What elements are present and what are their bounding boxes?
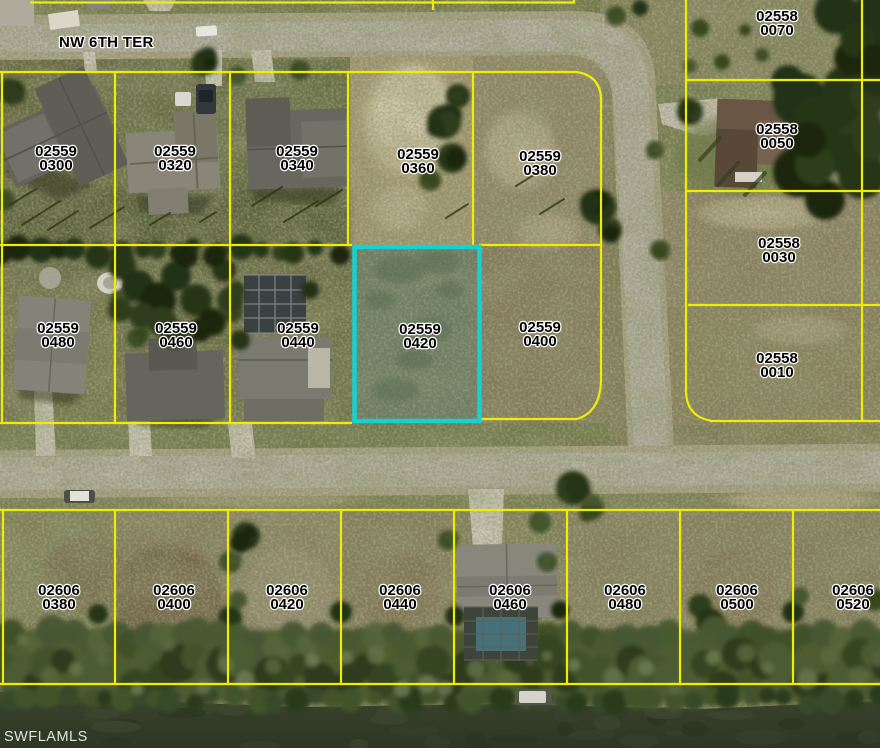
svg-text:0460: 0460 <box>493 596 526 613</box>
svg-text:0320: 0320 <box>158 157 191 174</box>
svg-text:0380: 0380 <box>523 162 556 179</box>
svg-text:0440: 0440 <box>281 334 314 351</box>
svg-text:0360: 0360 <box>401 160 434 177</box>
svg-text:0010: 0010 <box>760 364 793 381</box>
svg-text:0520: 0520 <box>836 596 869 613</box>
svg-text:0420: 0420 <box>270 596 303 613</box>
svg-text:0440: 0440 <box>383 596 416 613</box>
svg-text:NW 6TH TER: NW 6TH TER <box>59 34 154 51</box>
svg-text:0460: 0460 <box>159 334 192 351</box>
svg-text:0050: 0050 <box>760 135 793 152</box>
svg-text:0380: 0380 <box>42 596 75 613</box>
svg-text:0500: 0500 <box>720 596 753 613</box>
svg-text:0030: 0030 <box>762 249 795 266</box>
svg-text:0400: 0400 <box>523 333 556 350</box>
svg-text:0300: 0300 <box>39 157 72 174</box>
svg-text:0400: 0400 <box>157 596 190 613</box>
svg-text:SWFLAMLS: SWFLAMLS <box>4 729 88 745</box>
svg-text:0480: 0480 <box>41 334 74 351</box>
svg-text:0340: 0340 <box>280 157 313 174</box>
svg-text:0480: 0480 <box>608 596 641 613</box>
svg-text:0420: 0420 <box>403 335 436 352</box>
svg-text:0070: 0070 <box>760 22 793 39</box>
